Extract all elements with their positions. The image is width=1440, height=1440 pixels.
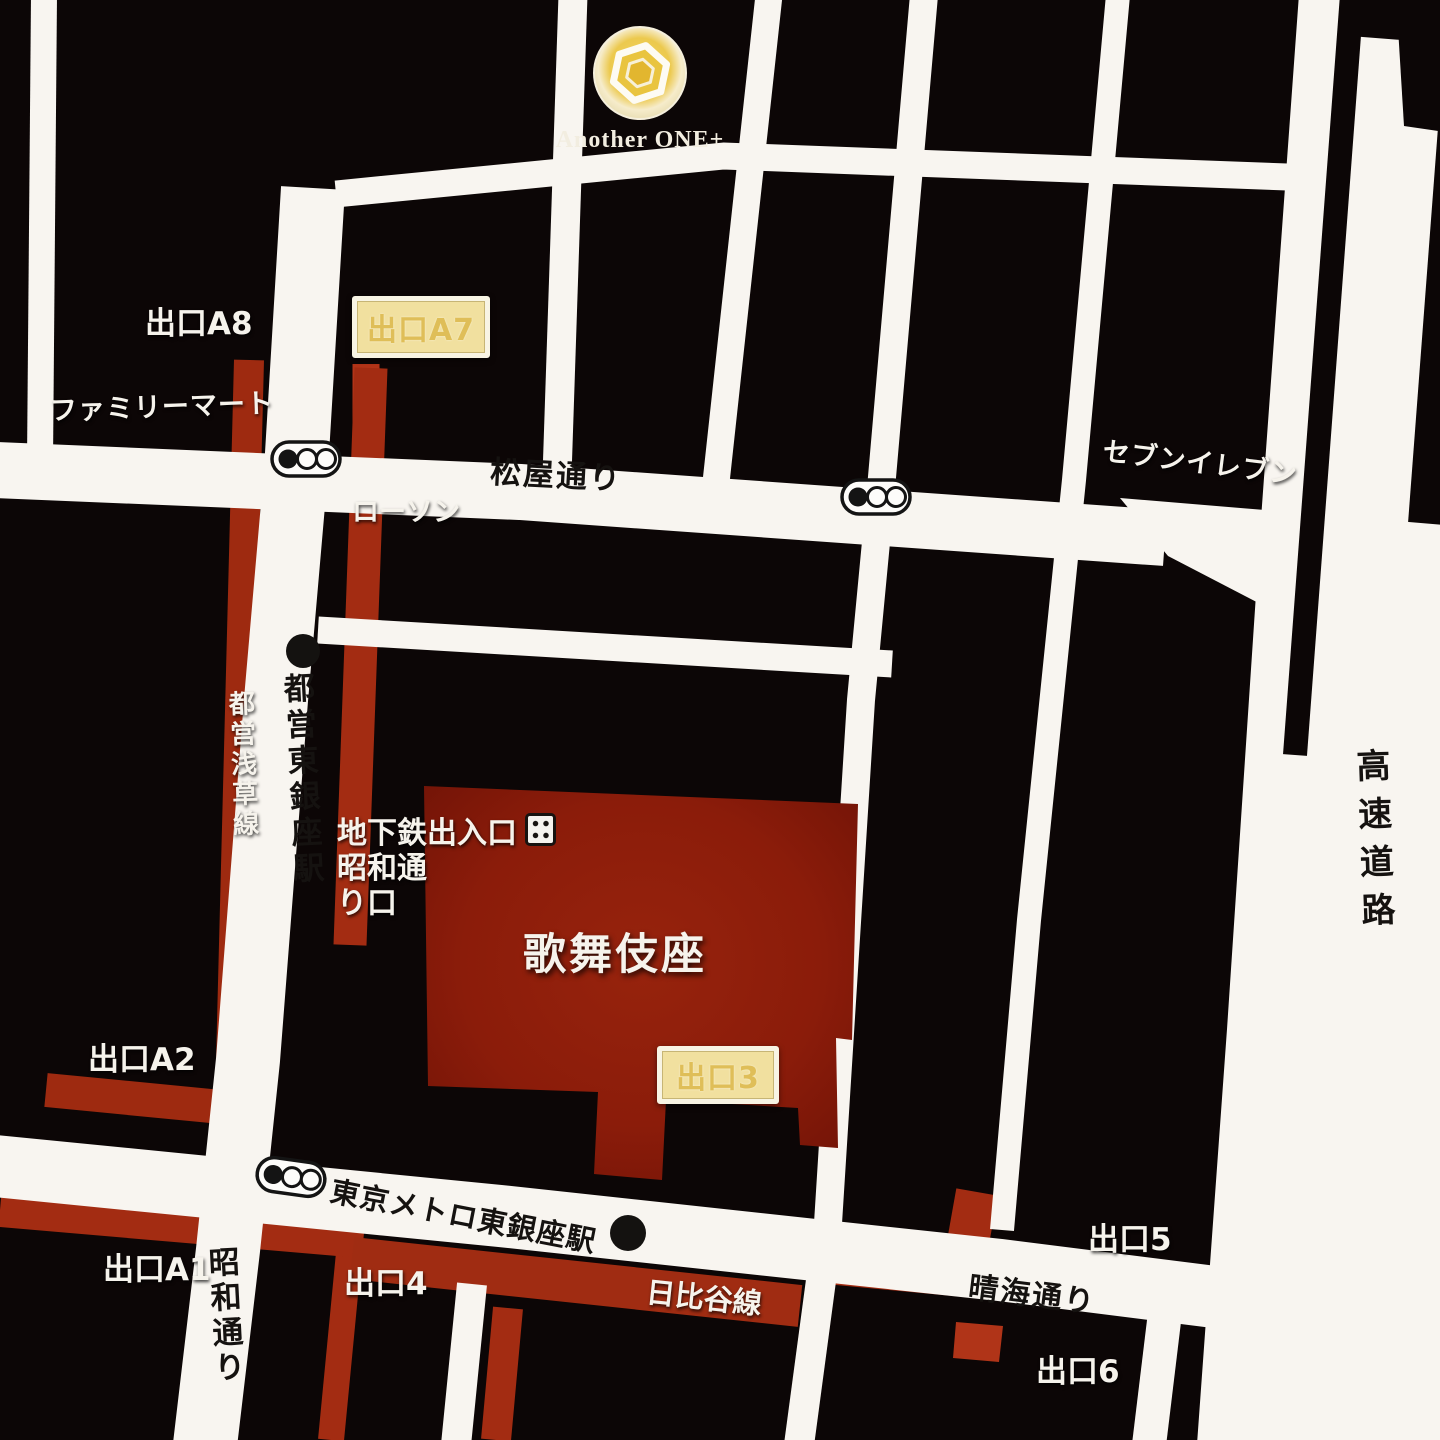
label-lawson: ローソン [352,497,460,529]
subway-entrance-text: 地下鉄出入口 [337,816,517,851]
label-showa-dori-entrance: 昭和通 り口 [337,851,427,922]
station-dot-icon [610,1215,646,1251]
logo-label: Another ONE+ [528,126,752,154]
label-exit-a2: 出口A2 [88,1042,196,1079]
hex-coin-icon [594,27,686,119]
label-exit-a1: 出口A1 [103,1252,211,1289]
label-exit-5: 出口5 [1088,1222,1172,1259]
badge-exit-3: 出口3 [657,1046,779,1104]
badge-exit-a7-label: 出口A7 [367,305,475,349]
label-exit-6: 出口6 [1036,1354,1120,1391]
label-matsuya-dori: 松屋通り [489,455,623,498]
traffic-light-icon [842,480,910,514]
badge-exit-3-label: 出口3 [676,1053,760,1097]
label-exit-a8: 出口A8 [145,306,253,343]
station-dot-icon [286,634,320,668]
label-kabukiza: 歌舞伎座 [450,930,780,981]
badge-exit-a7: 出口A7 [352,296,490,358]
label-expressway: 高速道路 [1348,747,1396,963]
map-canvas [0,0,1440,1440]
label-exit-4: 出口4 [344,1266,428,1303]
subway-gate-icon [525,813,556,846]
street-map: Another ONE+ 出口A8 出口A7 ファミリーマート ローソン 松屋通… [0,0,1440,1440]
traffic-light-icon [272,442,340,476]
label-subway-entrance: 地下鉄出入口 [337,813,556,851]
